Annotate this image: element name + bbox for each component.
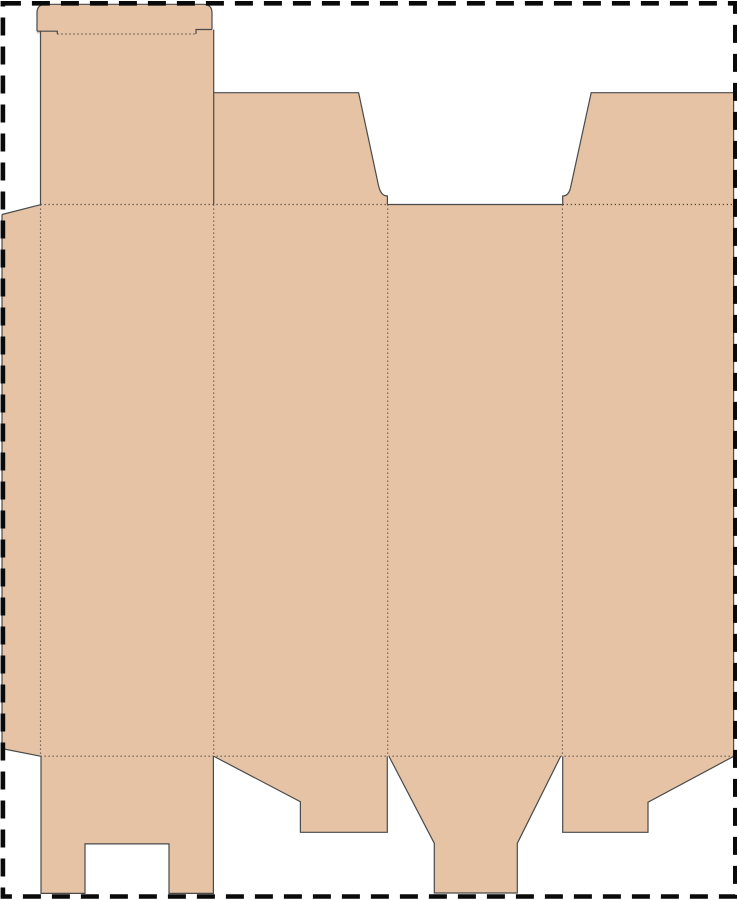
tuck-lid-neck xyxy=(41,30,214,205)
dieline-stage xyxy=(0,0,737,900)
bottom-flap-panel1 xyxy=(41,756,213,893)
top-flap-panel4 xyxy=(563,93,734,205)
bottom-flap-panel3 xyxy=(389,756,561,893)
glue-flap xyxy=(2,205,41,757)
main-panels-band xyxy=(41,205,734,757)
dieline-drawing xyxy=(0,0,737,900)
tuck-lid-tongue xyxy=(37,4,212,33)
top-flap-panel2 xyxy=(214,93,388,205)
